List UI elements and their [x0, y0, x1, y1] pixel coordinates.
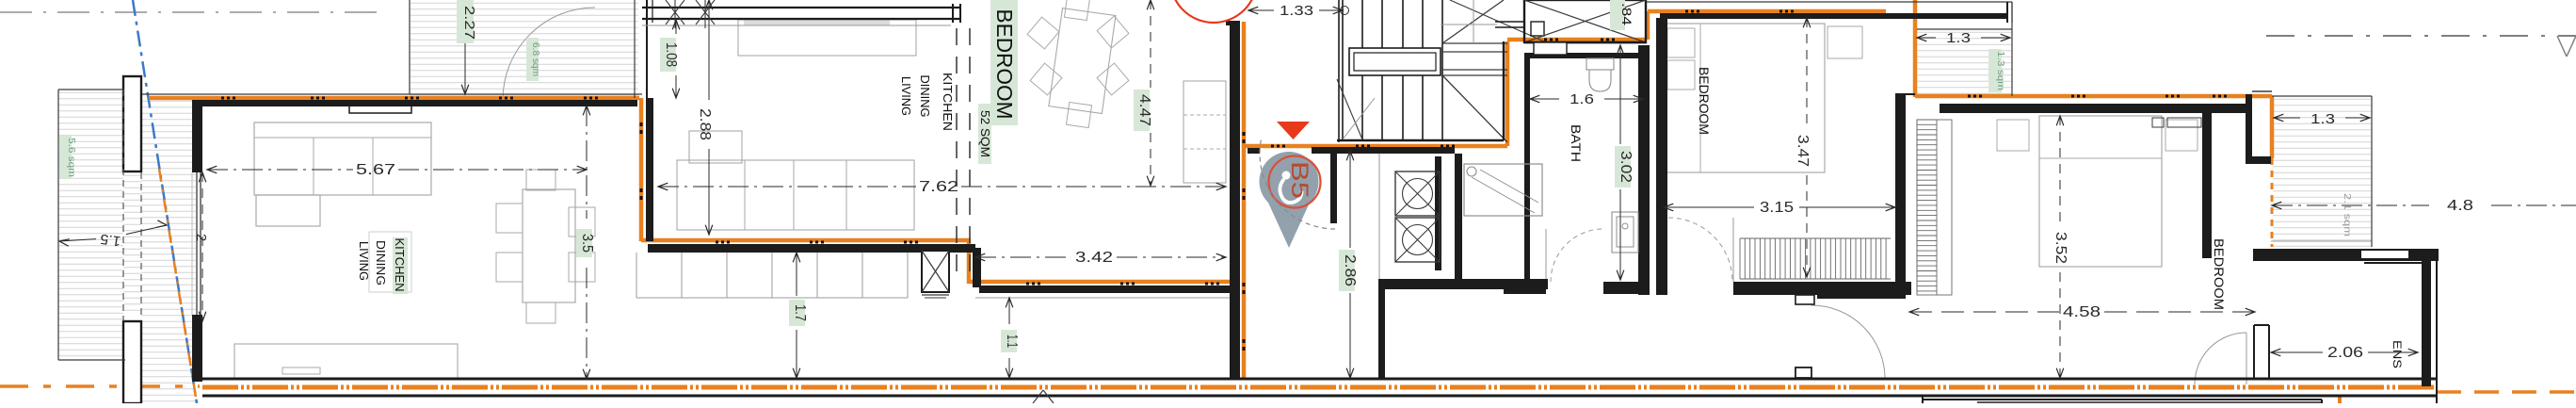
svg-text:LIVING: LIVING [899, 76, 913, 116]
svg-text:4.8: 4.8 [2447, 198, 2473, 214]
svg-text:52 SQM: 52 SQM [978, 110, 992, 157]
svg-text:4.47: 4.47 [1136, 94, 1152, 126]
svg-text:2.88: 2.88 [697, 108, 713, 140]
svg-text:6.8 sqm: 6.8 sqm [530, 42, 540, 76]
svg-text:4.58: 4.58 [2063, 304, 2101, 320]
svg-text:3.02: 3.02 [1618, 151, 1634, 183]
svg-text:2: 2 [193, 234, 209, 241]
svg-text:1.6: 1.6 [1570, 91, 1594, 107]
svg-text:3.47: 3.47 [1795, 135, 1811, 167]
svg-text:7.62: 7.62 [919, 179, 958, 195]
svg-text:5.67: 5.67 [356, 162, 395, 178]
svg-text:3.52: 3.52 [2053, 232, 2069, 264]
svg-text:1.08: 1.08 [663, 42, 679, 67]
svg-text:1.3: 1.3 [1946, 30, 1971, 46]
svg-text:KITCHEN: KITCHEN [393, 238, 407, 292]
svg-text:1.5: 1.5 [99, 231, 121, 250]
svg-text:BATH: BATH [1569, 124, 1584, 162]
svg-text:LIVING: LIVING [357, 241, 371, 281]
svg-text:1.33: 1.33 [1280, 3, 1313, 19]
svg-text:2.27: 2.27 [461, 6, 477, 40]
svg-text:.84: .84 [1619, 3, 1634, 25]
svg-text:KITCHEN: KITCHEN [941, 73, 955, 131]
svg-text:2.86: 2.86 [1342, 254, 1358, 286]
svg-text:1.7: 1.7 [792, 304, 808, 321]
svg-text:ENS: ENS [2391, 340, 2404, 368]
svg-text:5.6 sqm: 5.6 sqm [66, 138, 76, 177]
svg-text:1.3: 1.3 [2310, 111, 2335, 127]
svg-text:B5: B5 [1286, 161, 1312, 199]
svg-text:BEDROOM: BEDROOM [1697, 67, 1712, 135]
svg-text:2.06: 2.06 [2327, 345, 2363, 361]
svg-text:3.42: 3.42 [1075, 250, 1113, 266]
svg-text:DINING: DINING [918, 75, 932, 118]
svg-text:1.1: 1.1 [1004, 335, 1020, 348]
svg-text:2.1 sqm: 2.1 sqm [2342, 193, 2352, 237]
svg-text:BEDROOM: BEDROOM [2212, 238, 2227, 310]
svg-text:3.5: 3.5 [579, 234, 595, 253]
svg-text:BEDROOM: BEDROOM [992, 9, 1017, 120]
svg-text:DINING: DINING [374, 240, 388, 286]
svg-text:3.15: 3.15 [1760, 200, 1794, 216]
svg-text:1.3 sqm: 1.3 sqm [1995, 51, 2005, 90]
